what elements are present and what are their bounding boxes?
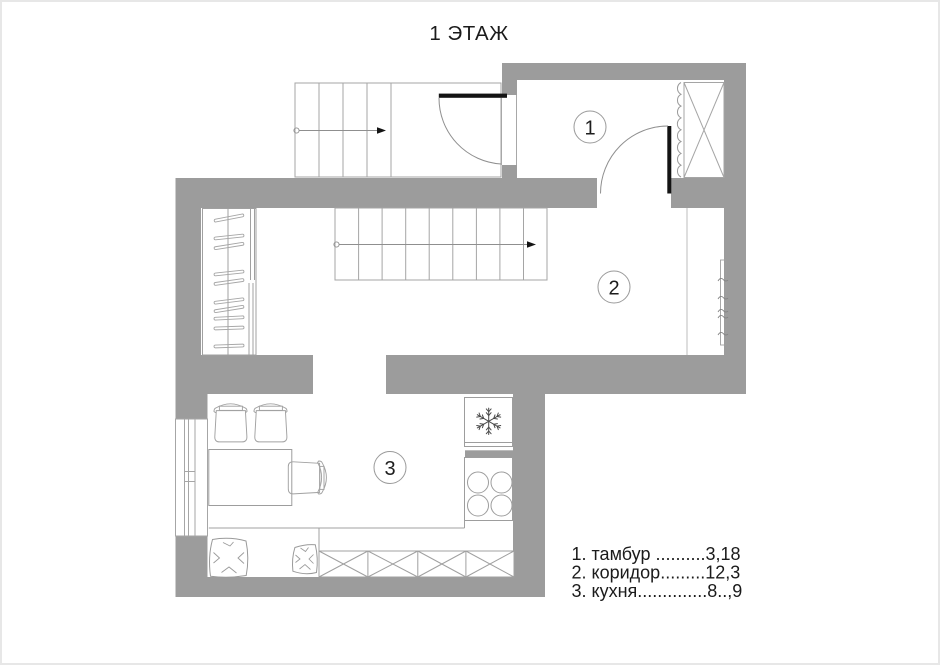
svg-text:3: 3 bbox=[384, 458, 395, 480]
svg-text:2. коридор.........12,3: 2. коридор.........12,3 bbox=[572, 563, 741, 583]
svg-text:3. кухня..............8..,9: 3. кухня..............8..,9 bbox=[572, 581, 743, 601]
svg-text:1 ЭТАЖ: 1 ЭТАЖ bbox=[429, 22, 508, 45]
svg-text:1. тамбур ..........3,18: 1. тамбур ..........3,18 bbox=[572, 544, 741, 564]
svg-text:1: 1 bbox=[584, 117, 595, 139]
svg-text:2: 2 bbox=[608, 277, 619, 299]
